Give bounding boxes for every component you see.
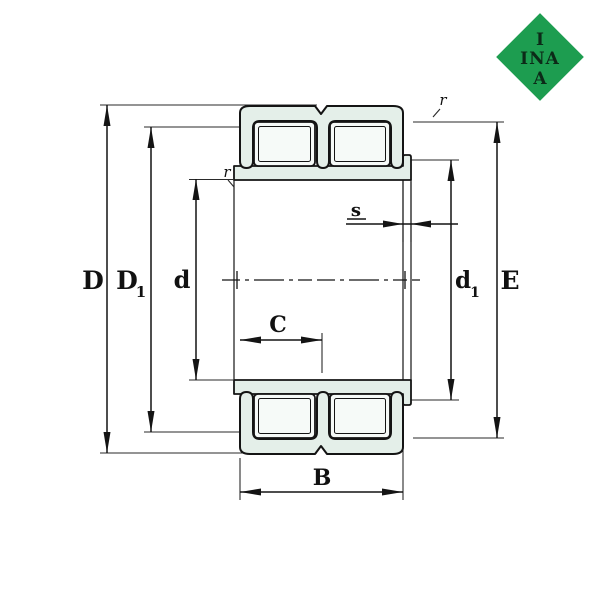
arrowhead-E-bottom [494, 417, 501, 438]
ina-logo-letter-bottom: A [532, 69, 547, 89]
label-D: D [82, 266, 104, 295]
arrowhead-C-right [301, 337, 322, 344]
label-d1: d [455, 267, 471, 294]
leader-r-right [433, 109, 440, 117]
arrowhead-d-top [193, 179, 200, 200]
arrowhead-s-left [383, 221, 403, 228]
label-D1-subscript: 1 [136, 283, 146, 301]
ina-logo: I INA A [496, 13, 584, 101]
arrowhead-E-top [494, 122, 501, 143]
label-s: s [351, 200, 361, 221]
arrowhead-s-right [411, 221, 431, 228]
roller-bottom-left [254, 394, 315, 438]
axis-centerline [222, 271, 420, 289]
label-r-left: r [223, 163, 231, 181]
ina-logo-letter-top: I [536, 30, 544, 50]
arrowhead-d-bottom [193, 359, 200, 380]
arrowhead-B-right [382, 489, 403, 496]
roller-bottom-right [330, 394, 390, 438]
arrowhead-D-top [104, 105, 111, 126]
roller-top-left [254, 122, 315, 166]
arrowhead-D1-top [148, 127, 155, 148]
label-E: E [500, 266, 519, 295]
ina-logo-letters-middle: INA [520, 49, 560, 69]
label-d1-subscript: 1 [470, 285, 480, 301]
arrowhead-d1-top [448, 160, 455, 181]
label-d: d [174, 265, 191, 294]
arrowhead-d1-bottom [448, 379, 455, 400]
label-D1: D [116, 266, 138, 295]
arrowhead-C-left [240, 337, 261, 344]
arrowhead-D1-bottom [148, 411, 155, 432]
arrowhead-D-bottom [104, 432, 111, 453]
bearing-cross-section-diagram: D D 1 d d 1 E B C s r r I INA A [0, 0, 600, 600]
label-C: C [269, 312, 287, 338]
bearing-drawing-canvas: D D 1 d d 1 E B C s r r I INA A [0, 0, 600, 600]
label-r-right: r [439, 91, 447, 109]
label-B: B [313, 465, 332, 491]
arrowhead-B-left [240, 489, 261, 496]
leader-r-left [228, 180, 234, 187]
roller-top-right [330, 122, 390, 166]
